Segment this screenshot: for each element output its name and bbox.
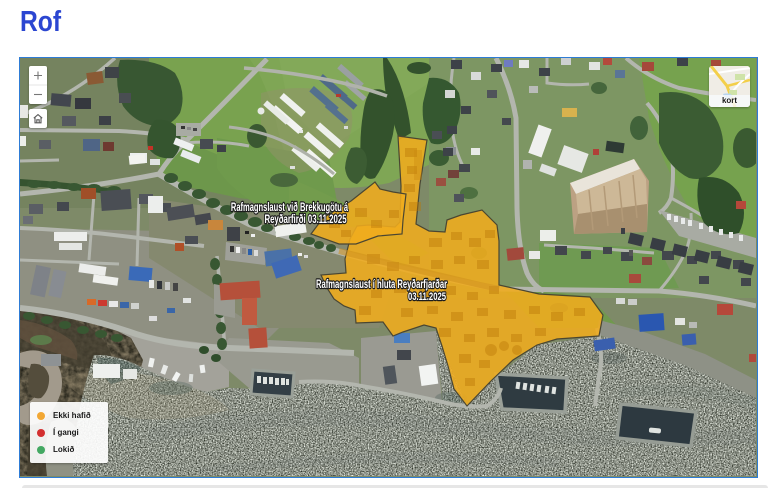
- svg-text:Reyðarfirði 03.11.2025: Reyðarfirði 03.11.2025: [264, 214, 347, 227]
- svg-text:03.11.2025: 03.11.2025: [408, 291, 446, 304]
- svg-text:Rafmagnslaust í hluta Reyðarfj: Rafmagnslaust í hluta Reyðarfjarðar: [316, 279, 447, 292]
- svg-text:Rafmagnslaust við Brekkugötu á: Rafmagnslaust við Brekkugötu á: [231, 202, 349, 215]
